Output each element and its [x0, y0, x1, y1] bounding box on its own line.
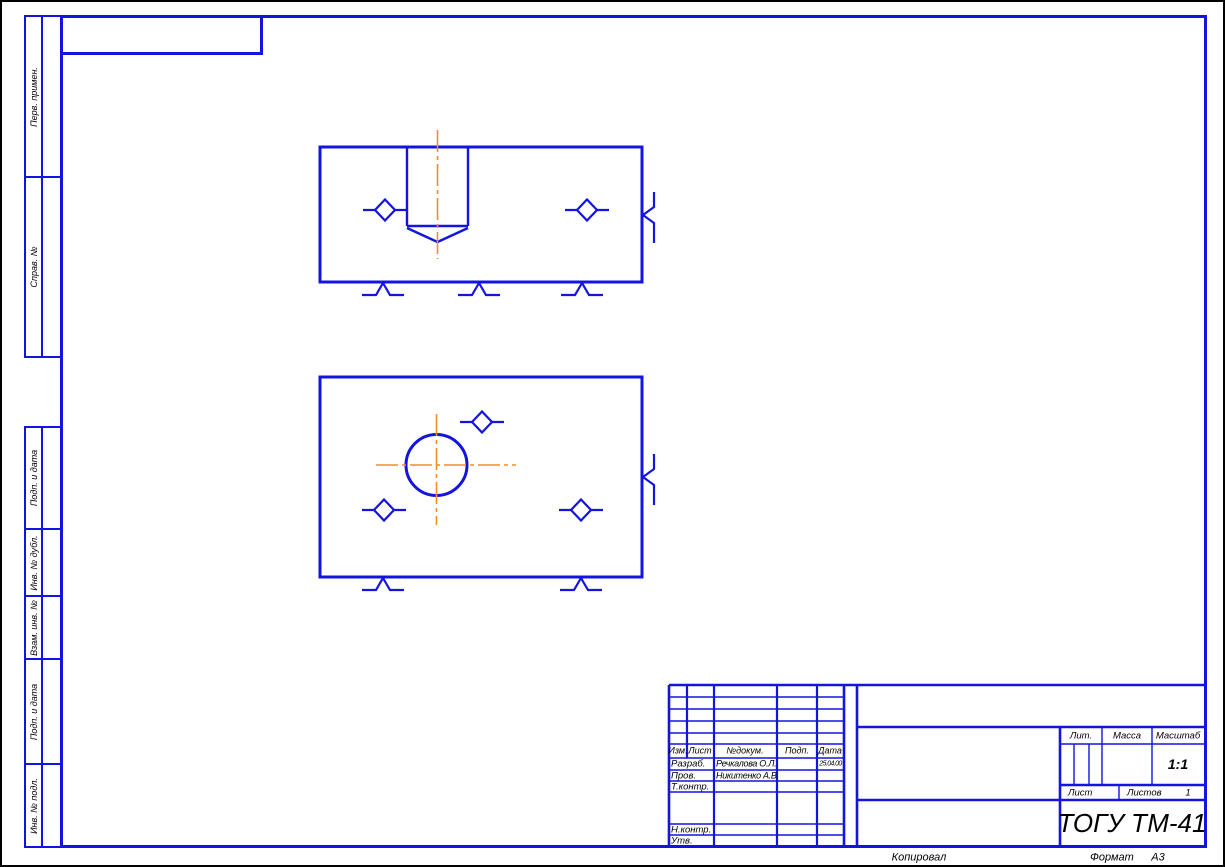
datum-diamond: [559, 500, 603, 521]
scale-value: 1:1: [1168, 757, 1188, 771]
mass-label: Масса: [1113, 731, 1141, 741]
datum-diamond: [363, 200, 407, 221]
organization-title: ТОГУ ТМ-41: [1058, 810, 1207, 836]
datum-diamond: [362, 500, 406, 521]
datum-diamond: [565, 200, 609, 221]
row-role-prov: Пров.: [671, 771, 696, 781]
roughness-mark-right: [643, 454, 654, 505]
scale-label: Масштаб: [1156, 731, 1200, 741]
sheets-label: Листов: [1127, 788, 1162, 798]
col-header-list: Лист: [688, 747, 711, 756]
row-role-nkontr: Н.контр.: [671, 825, 711, 835]
col-header-izm: Изм.: [668, 747, 687, 756]
front-view: [320, 130, 654, 295]
drawing-canvas: [2, 2, 1225, 867]
col-header-data: Дата: [818, 747, 842, 756]
row-role-razrab: Разраб.: [671, 759, 705, 769]
row-role-tkontr: Т.контр.: [671, 782, 709, 792]
drawing-sheet: Перв. примен. Справ. № Подп. и дата Инв.…: [0, 0, 1225, 867]
hole-centerlines: [376, 414, 516, 525]
sheet-label: Лист: [1068, 788, 1092, 798]
format-value: А3: [1151, 853, 1164, 864]
col-header-podp: Подп.: [785, 747, 809, 756]
datum-diamond: [460, 412, 504, 433]
plan-view: [320, 377, 654, 590]
row-role-utv: Утв.: [671, 836, 693, 846]
plan-view-outline: [320, 377, 642, 577]
roughness-marks-bottom: [362, 578, 602, 590]
col-header-dokum: №докум.: [726, 747, 763, 756]
roughness-marks-bottom: [362, 283, 603, 295]
sheets-value: 1: [1185, 788, 1190, 798]
copied-label: Копировал: [892, 853, 947, 864]
format-label: Формат: [1090, 853, 1134, 864]
row-date-razrab: 25.04.00: [819, 761, 841, 768]
row-name-razrab: Речкалова О.Л.: [716, 760, 776, 769]
roughness-mark-right: [643, 192, 654, 243]
lit-label: Лит.: [1070, 731, 1092, 741]
row-name-prov: Никитенко А.В.: [716, 771, 779, 780]
